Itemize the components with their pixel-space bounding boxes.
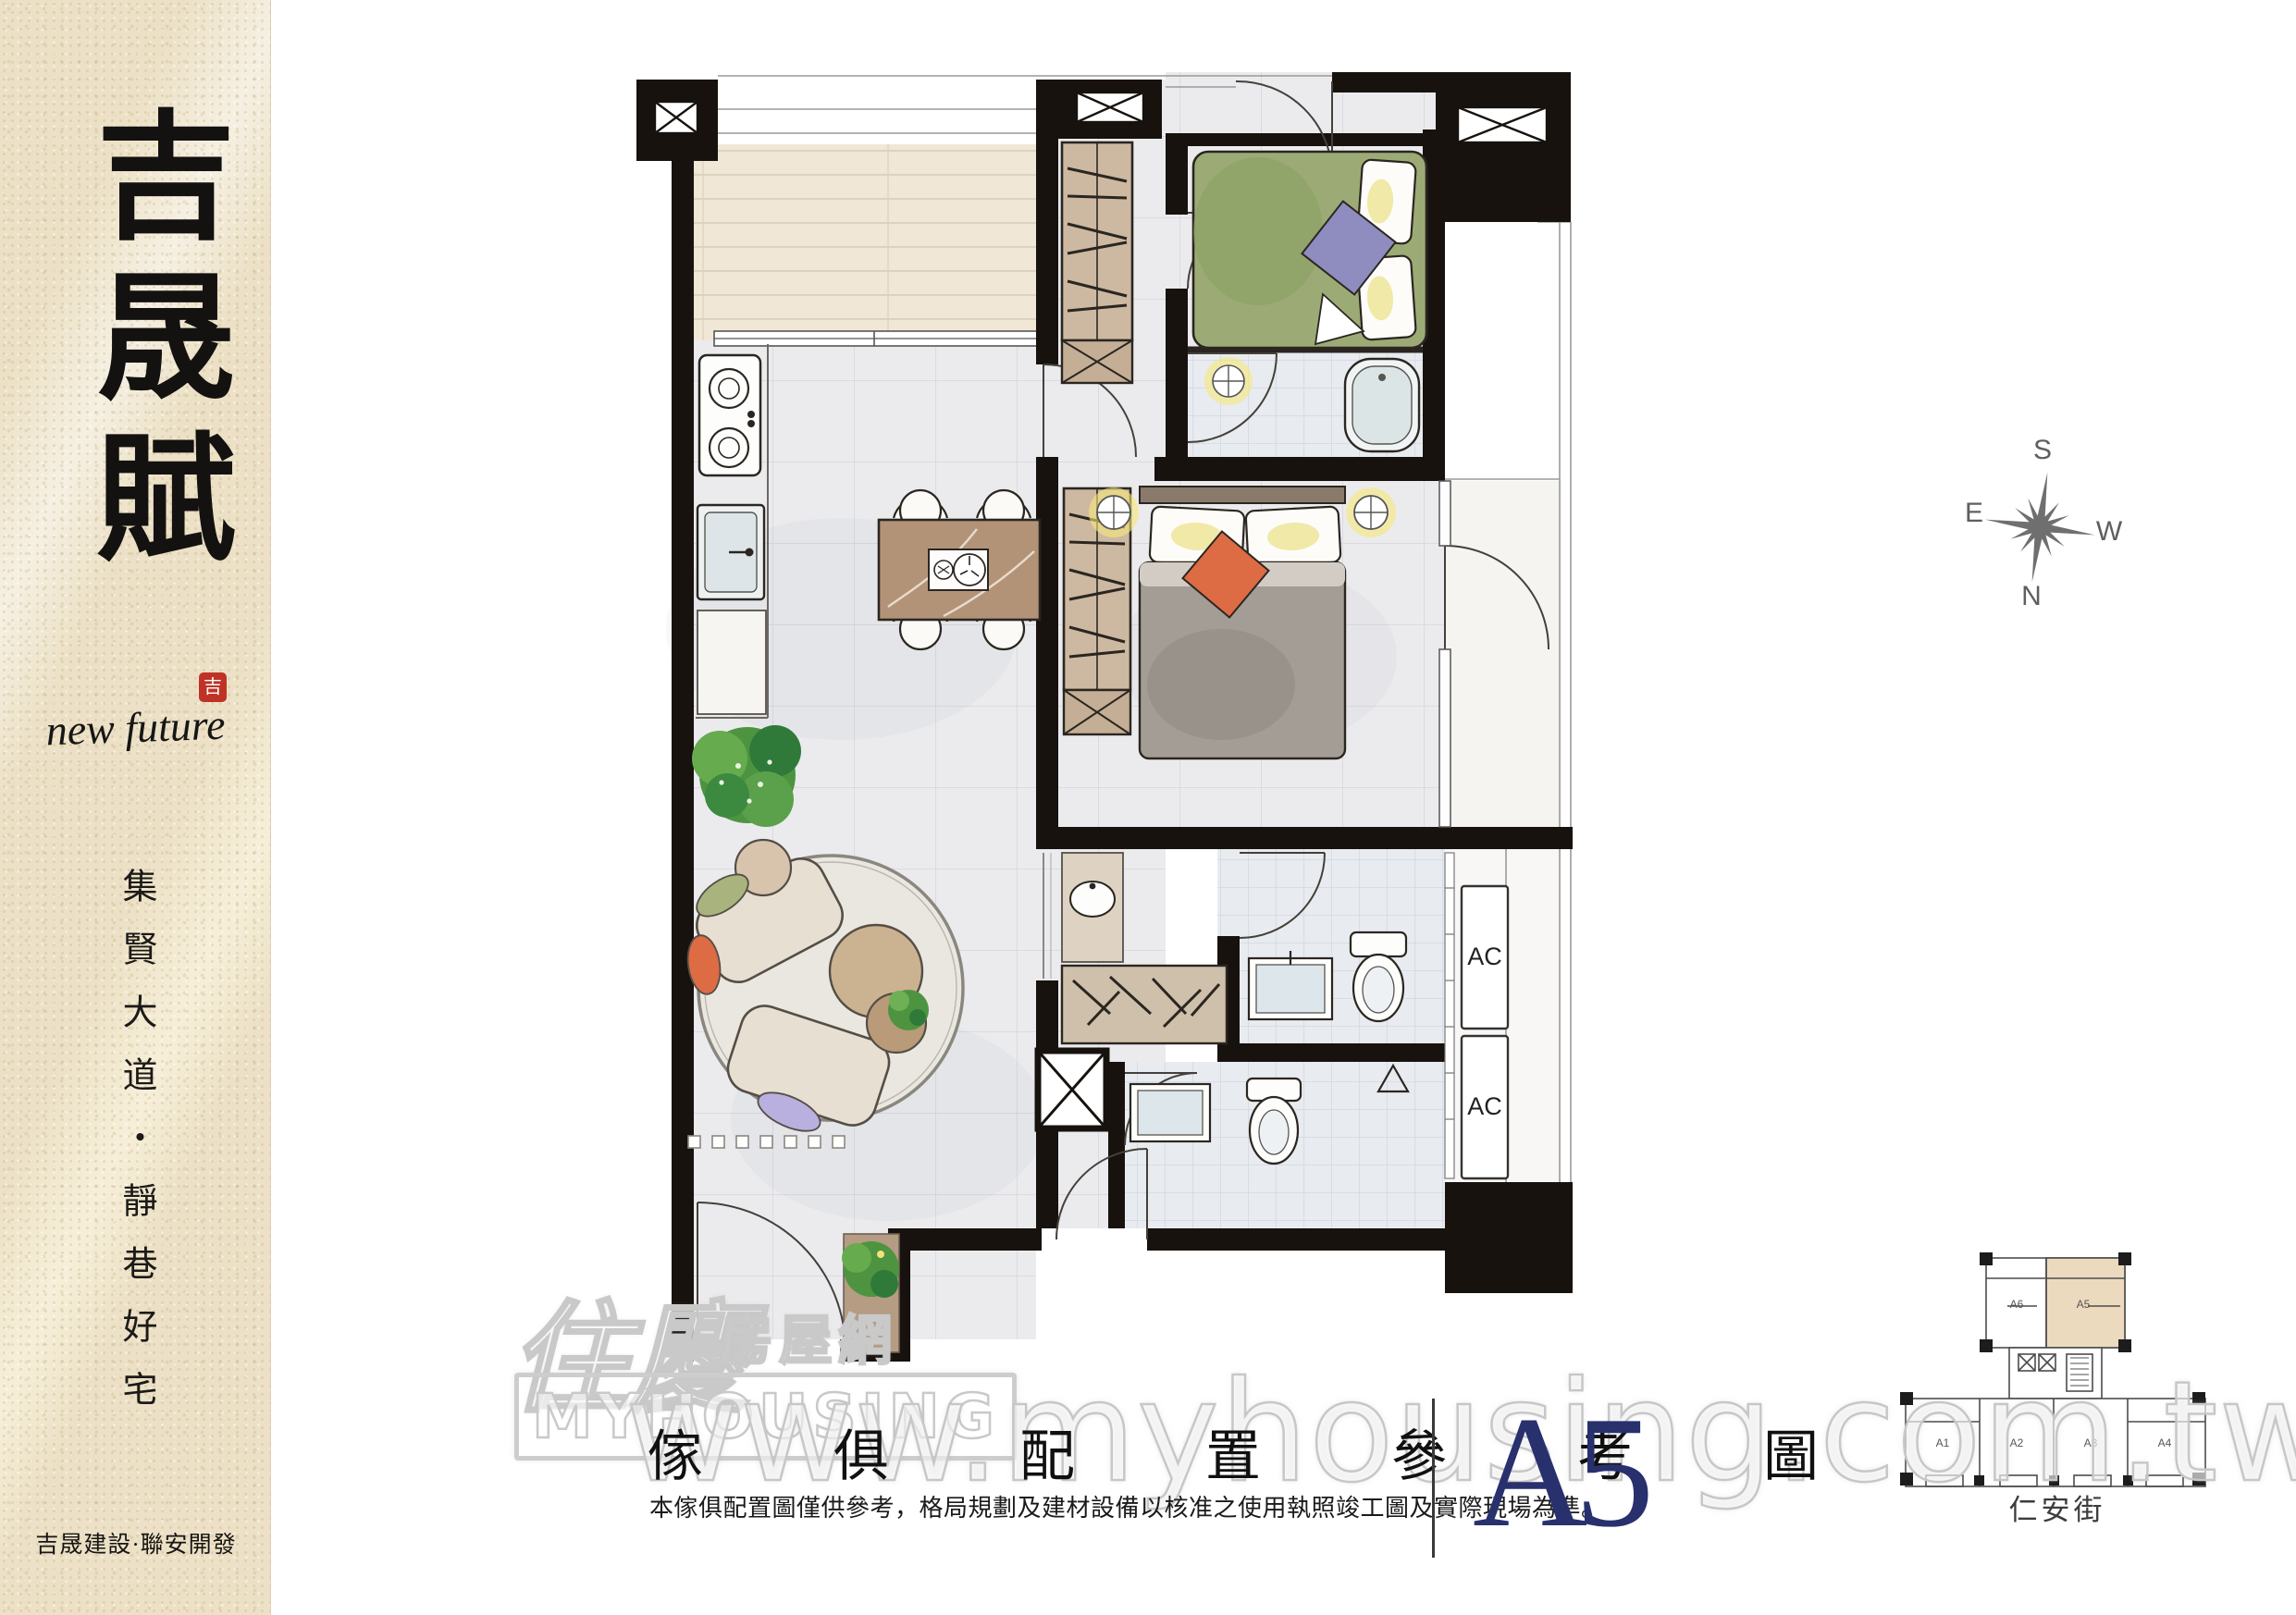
title-divider <box>1432 1399 1435 1558</box>
compass-top: S <box>2033 435 2052 465</box>
svg-text:A6: A6 <box>2010 1298 2024 1311</box>
svg-text:A5: A5 <box>2077 1298 2091 1311</box>
entry-closet <box>1062 142 1132 383</box>
rug-dots <box>688 1136 845 1148</box>
headboard <box>1140 487 1345 503</box>
ac-label-1: AC <box>1467 943 1502 970</box>
brand-script: new future <box>31 699 241 756</box>
master-balcony-floor <box>1445 481 1562 827</box>
compass: S E W N <box>1950 427 2135 640</box>
kitchen-counter <box>697 610 766 714</box>
page: 吉晟賦 吉 new future 集賢大道・靜巷好宅 吉晟建設·聯安開發 <box>0 0 2296 1615</box>
brand-calligraphy: 吉晟賦 <box>46 104 222 586</box>
floorplan: AC AC <box>611 55 1647 1378</box>
floorplan-drawing: AC AC <box>611 55 1647 1378</box>
balcony-wood-floor <box>694 144 1036 340</box>
kitchen <box>696 344 768 718</box>
compass-left: E <box>1965 498 1983 528</box>
red-seal-stamp: 吉 <box>199 672 227 702</box>
bedroom2 <box>1193 152 1426 348</box>
toilet2 <box>1351 932 1406 1021</box>
disclaimer-text: 本傢俱配置圖僅供參考，格局規劃及建材設備以核准之使用執照竣工圖及實際現場為準。 <box>649 1489 1463 1523</box>
vertical-tagline: 集賢大道・靜巷好宅 <box>111 868 162 1441</box>
compass-right: W <box>2096 516 2123 547</box>
plan-title: 傢 俱 配 置 參 考 圖 <box>648 1412 1877 1492</box>
balcony-sliding-window <box>714 331 1038 346</box>
brand-sidebar: 吉晟賦 吉 new future 集賢大道・靜巷好宅 吉晟建設·聯安開發 <box>0 0 271 1615</box>
developer-names: 吉晟建設·聯安開發 <box>17 1526 255 1560</box>
unit-label: A5 <box>1473 1393 1641 1552</box>
compass-star <box>1977 464 2103 590</box>
compass-bottom: N <box>2021 581 2042 611</box>
toilet3 <box>1247 1079 1301 1164</box>
ac-label-2: AC <box>1467 1092 1502 1120</box>
